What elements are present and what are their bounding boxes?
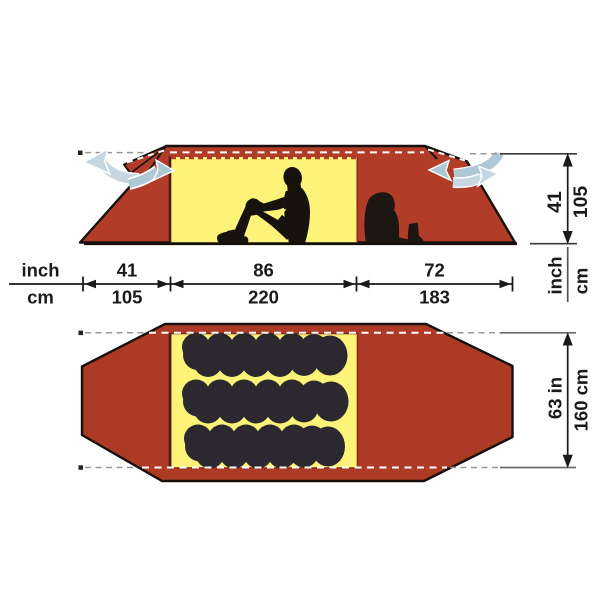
svg-text:inch: inch (21, 260, 59, 281)
svg-text:86: 86 (253, 260, 274, 281)
svg-text:160 cm: 160 cm (571, 369, 592, 432)
svg-text:41: 41 (544, 191, 566, 213)
svg-text:105: 105 (570, 186, 592, 219)
svg-text:220: 220 (248, 287, 279, 308)
svg-text:cm: cm (571, 268, 592, 295)
svg-text:cm: cm (27, 287, 54, 308)
svg-text:inch: inch (545, 256, 566, 294)
svg-text:183: 183 (419, 287, 450, 308)
svg-text:105: 105 (112, 287, 143, 308)
svg-text:41: 41 (117, 260, 138, 281)
svg-text:63 in: 63 in (545, 377, 566, 419)
svg-text:72: 72 (424, 260, 445, 281)
